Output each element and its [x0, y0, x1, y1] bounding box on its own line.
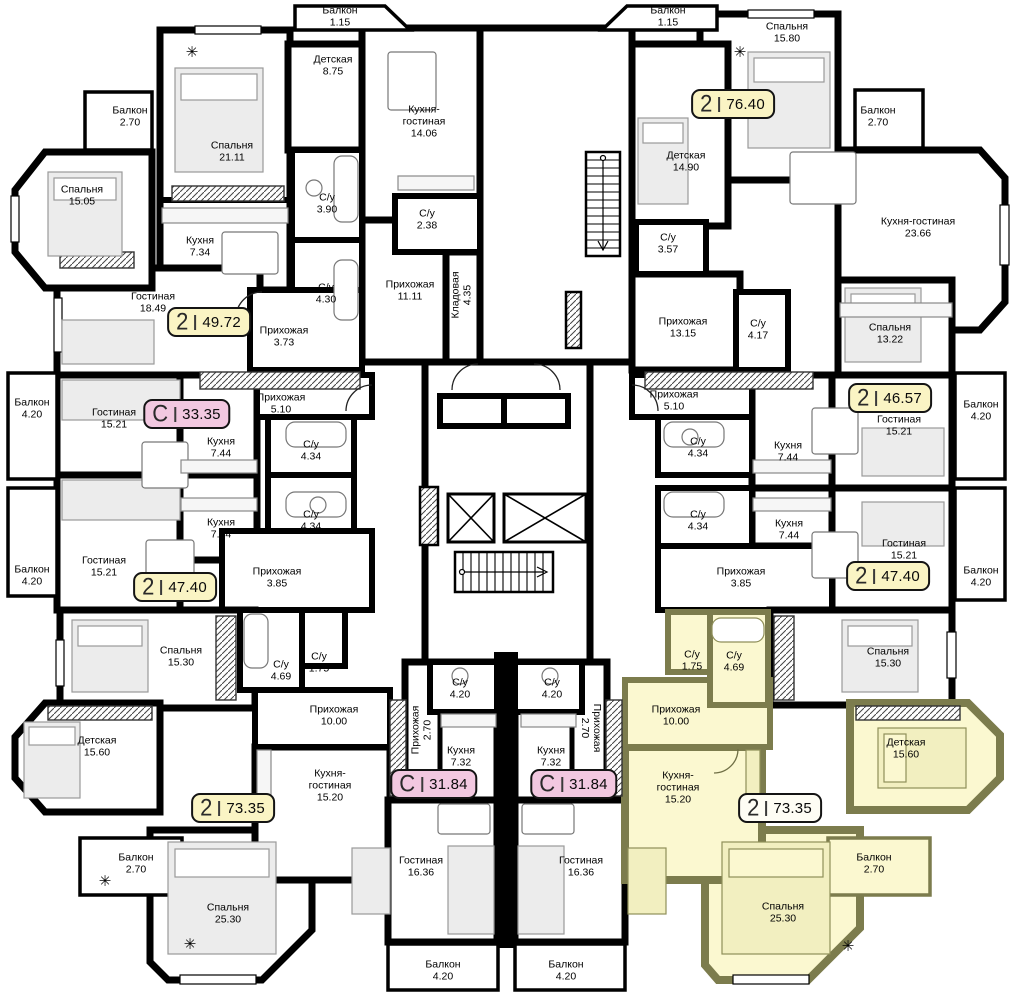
apartment-area: 49.72 — [202, 314, 241, 331]
apartment-area: 76.40 — [726, 96, 765, 113]
staircase — [455, 552, 553, 592]
apartment-type: 2 — [200, 796, 212, 820]
apartment-type: 2 — [142, 575, 154, 599]
badge-divider — [561, 777, 563, 792]
apartment-badge[interactable]: 246.57 — [848, 383, 932, 413]
apartment-area: 33.35 — [182, 406, 221, 423]
badge-divider — [873, 569, 875, 584]
apartment-badge[interactable]: 273.35 — [191, 793, 275, 823]
floorplan: Спальня21.11Детская8.75Балкон2.70Спальня… — [0, 0, 1012, 1000]
apartment-badge[interactable]: 273.35 — [738, 793, 822, 823]
apartment-type: 2 — [855, 564, 867, 588]
badge-divider — [174, 407, 176, 422]
apartment-type: С — [539, 772, 555, 796]
apartment-area: 73.35 — [226, 800, 265, 817]
apartment-type: 2 — [700, 92, 712, 116]
apartment-type: 2 — [857, 386, 869, 410]
apartment-badge[interactable]: 247.40 — [846, 561, 930, 591]
apartment-badge[interactable]: 276.40 — [691, 89, 775, 119]
badge-divider — [160, 580, 162, 595]
badge-divider — [875, 391, 877, 406]
apartment-badge[interactable]: 247.40 — [133, 572, 217, 602]
ventilation-shaft — [420, 487, 438, 545]
elevator-shaft — [448, 494, 586, 542]
staircase — [586, 152, 620, 256]
badge-divider — [194, 315, 196, 330]
apartment-area: 46.57 — [883, 390, 922, 407]
ventilation-shaft — [566, 292, 581, 348]
apartment-area: 31.84 — [569, 776, 608, 793]
badge-divider — [421, 777, 423, 792]
apartment-badge[interactable]: 249.72 — [167, 307, 251, 337]
apartment-area: 47.40 — [168, 579, 207, 596]
apartment-type: 2 — [747, 796, 759, 820]
apartment-area: 31.84 — [429, 776, 468, 793]
apartment-badge[interactable]: С31.84 — [530, 769, 617, 799]
floorplan-svg — [0, 0, 1012, 1000]
badge-divider — [765, 801, 767, 816]
apartment-type: 2 — [176, 310, 188, 334]
badge-divider — [218, 801, 220, 816]
badge-divider — [718, 97, 720, 112]
apartment-type: С — [399, 772, 415, 796]
apartment-badge[interactable]: С33.35 — [143, 399, 230, 429]
apartment-type: С — [152, 402, 168, 426]
apartment-area: 47.40 — [881, 568, 920, 585]
apartment-badge[interactable]: С31.84 — [390, 769, 477, 799]
apartment-area: 73.35 — [773, 800, 812, 817]
